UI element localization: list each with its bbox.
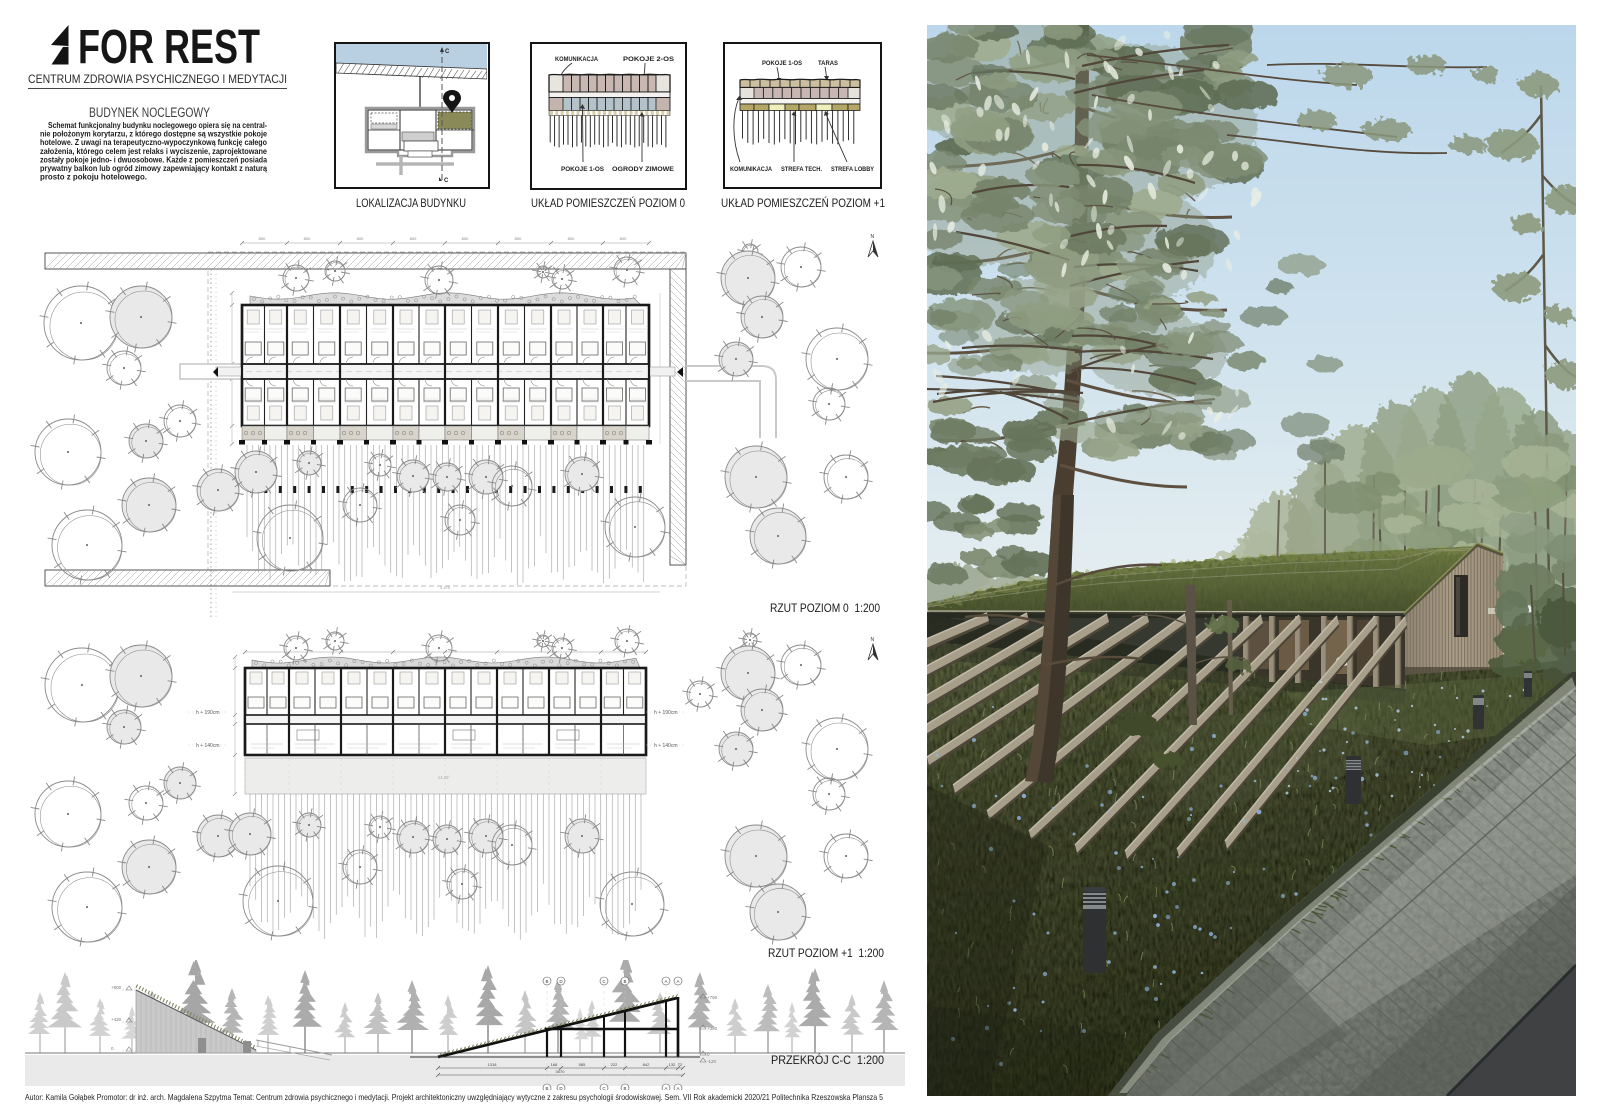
- svg-text:800: 800: [620, 236, 627, 241]
- svg-text:3.470: 3.470: [440, 585, 451, 590]
- svg-text:UKŁAD POMIESZCZEŃ POZIOM 0: UKŁAD POMIESZCZEŃ POZIOM 0: [531, 197, 685, 210]
- svg-text:POKOJE 1-OS: POKOJE 1-OS: [762, 60, 803, 67]
- svg-text:72: 72: [678, 1062, 683, 1067]
- svg-text:800: 800: [462, 236, 469, 241]
- svg-text:C: C: [444, 178, 449, 184]
- svg-text:Autor: Kamila Gołąbek Promot: Autor: Kamila Gołąbek Promotor: dr inż. …: [25, 1092, 883, 1102]
- svg-text:N: N: [871, 234, 875, 240]
- svg-text:0: 0: [111, 1046, 114, 1051]
- svg-text:BUDYNEK NOCLEGOWY: BUDYNEK NOCLEGOWY: [89, 105, 210, 120]
- svg-text:TARAS: TARAS: [818, 60, 839, 67]
- svg-text:A: A: [664, 979, 667, 984]
- svg-text:RZUT POZIOM +1 1:200: RZUT POZIOM +1 1:200: [768, 948, 884, 960]
- svg-text:C: C: [445, 49, 450, 55]
- svg-text:800: 800: [568, 236, 575, 241]
- svg-text:FOR REST: FOR REST: [78, 22, 260, 68]
- svg-text:-120: -120: [707, 1059, 717, 1064]
- svg-text:CENTRUM ZDROWIA PSYCHICZNEGO I: CENTRUM ZDROWIA PSYCHICZNEGO I MEDYTACJI: [28, 72, 287, 86]
- svg-text:14.26°: 14.26°: [438, 775, 450, 780]
- svg-text:STREFA TECH.: STREFA TECH.: [781, 166, 822, 173]
- svg-text:585: 585: [579, 1062, 586, 1067]
- svg-text:+790: +790: [707, 995, 718, 1000]
- svg-text:132: 132: [669, 1062, 676, 1067]
- svg-text:222: 222: [611, 1062, 618, 1067]
- svg-text:800: 800: [515, 236, 522, 241]
- svg-text:prosto z pokoju hotelowego.: prosto z pokoju hotelowego.: [40, 173, 147, 182]
- svg-text:A: A: [676, 979, 679, 984]
- svg-text:OGRODY ZIMOWE: OGRODY ZIMOWE: [612, 166, 675, 173]
- svg-text:842: 842: [643, 1062, 650, 1067]
- svg-text:KOMUNIKACJA: KOMUNIKACJA: [555, 56, 598, 63]
- svg-text:LOKALIZACJA BUDYNKU: LOKALIZACJA BUDYNKU: [356, 198, 466, 210]
- svg-text:B: B: [545, 979, 548, 984]
- svg-text:+380: +380: [707, 1026, 718, 1031]
- svg-text:N: N: [871, 637, 875, 643]
- svg-text:800: 800: [357, 236, 364, 241]
- svg-text:h + 140cm: h + 140cm: [654, 743, 678, 749]
- svg-text:KOMUNIKACJA: KOMUNIKACJA: [730, 166, 772, 173]
- svg-text:h + 190cm: h + 190cm: [654, 710, 678, 716]
- svg-text:RZUT POZIOM 0 1:200: RZUT POZIOM 0 1:200: [770, 603, 880, 615]
- svg-text:800: 800: [304, 236, 311, 241]
- svg-text:800: 800: [259, 236, 266, 241]
- svg-text:POKOJE 1-OS: POKOJE 1-OS: [561, 166, 605, 173]
- svg-text:+430: +430: [111, 1017, 122, 1022]
- svg-text:1318: 1318: [488, 1062, 498, 1067]
- svg-text:STREFA LOBBY: STREFA LOBBY: [831, 166, 875, 173]
- svg-text:PRZEKRÓJ C-C 1:200: PRZEKRÓJ C-C 1:200: [771, 1054, 884, 1067]
- svg-text:3070: 3070: [556, 1069, 566, 1074]
- svg-text:POKOJE 2-OS: POKOJE 2-OS: [623, 56, 675, 63]
- svg-text:UKŁAD POMIESZCZEŃ POZIOM +1: UKŁAD POMIESZCZEŃ POZIOM +1: [721, 197, 885, 210]
- svg-text:h + 190cm: h + 190cm: [196, 710, 220, 716]
- svg-text:B: B: [623, 979, 626, 984]
- svg-text:168: 168: [551, 1062, 558, 1067]
- svg-text:h + 140cm: h + 140cm: [196, 743, 220, 749]
- svg-text:800: 800: [410, 236, 417, 241]
- svg-text:+800: +800: [111, 985, 122, 990]
